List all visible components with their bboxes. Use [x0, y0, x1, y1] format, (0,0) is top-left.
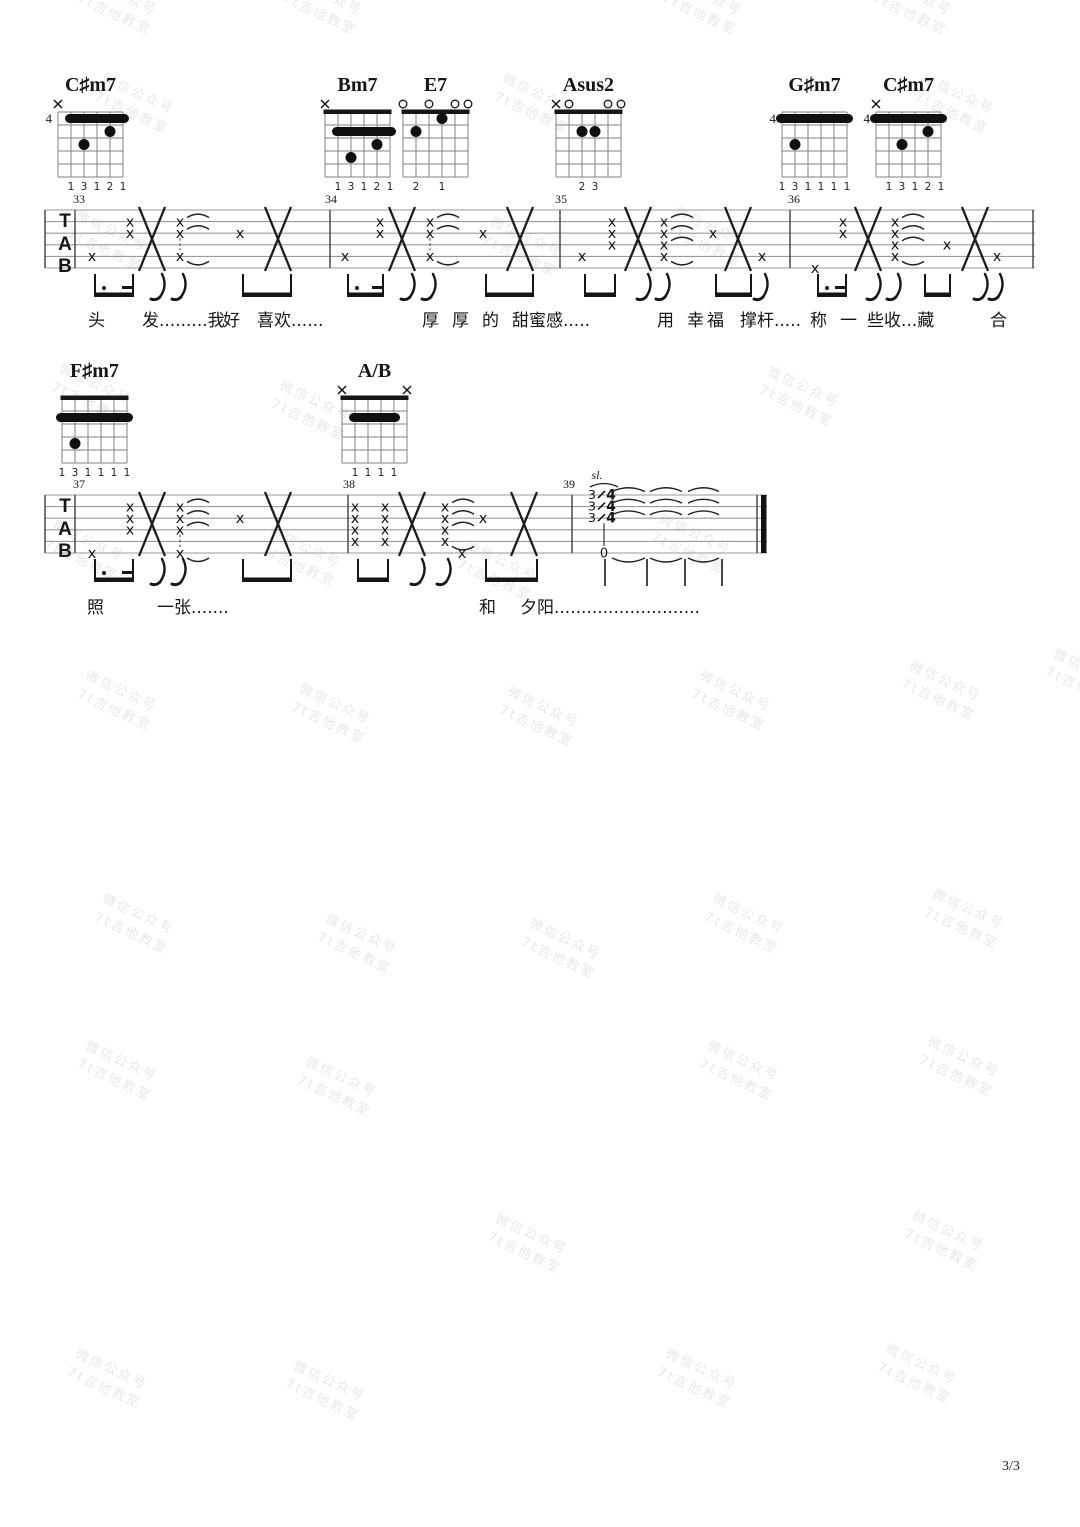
rhythm-flag-hook — [422, 297, 431, 300]
rhythm-beam — [584, 293, 616, 298]
chord-name: Bm7 — [338, 74, 378, 96]
chord-finger-number: 1 — [938, 181, 945, 193]
rhythm-flag-hook — [989, 297, 998, 300]
mute-x: x — [943, 238, 952, 254]
lyric-syllable: 喜欢...... — [257, 306, 323, 331]
mute-x: x — [441, 534, 450, 550]
measure-number: 38 — [343, 477, 355, 491]
chord-name: C♯m7 — [883, 74, 934, 96]
rhythm-flag-hook — [637, 297, 646, 300]
rhythm-beam — [485, 578, 538, 583]
chord-position-label: 4 — [46, 111, 53, 126]
chord-dot — [70, 438, 81, 449]
tie-arc — [650, 499, 682, 503]
tab-clef: B — [58, 256, 72, 277]
tab-clef: T — [59, 211, 71, 232]
open-string-icon — [399, 100, 407, 108]
chord-dot — [79, 139, 90, 150]
chord-finger-number: 1 — [387, 181, 394, 193]
mute-x: x — [176, 249, 185, 265]
chord-dot — [923, 126, 934, 137]
mute-x: x — [839, 226, 848, 242]
rhythm-flag-hook — [151, 297, 160, 300]
rhythm-beam — [94, 578, 134, 583]
open-note: 0 — [600, 547, 608, 562]
lyric-syllable: 厚 — [422, 306, 439, 331]
rhythm-dot — [355, 286, 359, 290]
measure-number: 39 — [563, 477, 575, 491]
chord-finger-number: 3 — [348, 181, 355, 193]
mute-x: x — [88, 249, 97, 265]
chord-finger-number: 1 — [805, 181, 812, 193]
mute-x: x — [341, 249, 350, 265]
chord-name: E7 — [424, 74, 447, 96]
tie-arc — [902, 226, 924, 230]
rhythm-flag-hook — [401, 297, 410, 300]
chord-finger-number: 2 — [374, 181, 381, 193]
chord-dot — [790, 139, 801, 150]
chord-finger-number: 3 — [899, 181, 906, 193]
rhythm-flag-hook — [151, 582, 160, 585]
rhythm-flag-hook — [656, 297, 665, 300]
chord-nut — [402, 110, 470, 115]
open-string-icon — [604, 100, 612, 108]
tie-arc — [650, 511, 682, 515]
tie-arc — [187, 499, 209, 503]
mute-x: x — [608, 238, 617, 254]
chord-barre — [870, 114, 947, 123]
chord-barre — [349, 413, 400, 422]
chord-finger-number: 1 — [94, 181, 101, 193]
chord-name: C♯m7 — [65, 74, 116, 96]
tie-arc — [612, 511, 645, 515]
tie-arc — [187, 558, 209, 562]
tie-arc — [187, 511, 209, 515]
rhythm-flag — [763, 274, 767, 297]
chord-finger-number: 2 — [413, 181, 420, 193]
chord-finger-number: 1 — [120, 181, 127, 193]
rhythm-flag — [420, 559, 424, 582]
rhythm-flag-hook — [437, 582, 446, 585]
tie-arc — [671, 237, 693, 241]
slide-from-fret: 3 — [588, 510, 596, 525]
rhythm-flag-hook — [172, 582, 181, 585]
lyric-syllable: 些收...藏 — [867, 306, 934, 331]
chord-nut — [61, 396, 129, 401]
final-barline-thick — [761, 495, 767, 553]
rhythm-flag-hook — [172, 297, 181, 300]
rhythm-beam — [242, 578, 292, 583]
mute-x: x — [126, 226, 135, 242]
rhythm-beam — [242, 293, 292, 298]
slide-label: sl. — [591, 468, 602, 482]
tie-arc — [688, 488, 719, 492]
lyric-syllable: 好 — [223, 306, 240, 331]
lyric-syllable: 甜蜜感..... — [512, 306, 590, 331]
rhythm-flag — [646, 274, 650, 297]
mute-x: x — [993, 249, 1002, 265]
chord-nut — [341, 396, 409, 401]
mute-x: x — [376, 226, 385, 242]
mute-x: x — [479, 511, 488, 527]
lyric-syllable: 称 — [810, 306, 827, 331]
rhythm-flag — [983, 274, 987, 297]
chord-finger-number: 2 — [925, 181, 932, 193]
chord-finger-number: 1 — [59, 467, 66, 479]
mute-x: x — [660, 249, 669, 265]
chord-finger-number: 1 — [124, 467, 131, 479]
mute-x: x — [126, 523, 135, 539]
tie-arc — [688, 499, 719, 503]
tie-arc — [187, 226, 209, 230]
lyric-syllable: 用 — [657, 306, 674, 331]
chord-position-label: 4 — [864, 111, 871, 126]
lyric-syllable: 和 — [479, 593, 496, 618]
chord-barre — [56, 413, 133, 422]
chord-dot — [897, 139, 908, 150]
tab-clef: A — [58, 234, 72, 255]
rhythm-dot — [825, 286, 829, 290]
tie-arc — [902, 261, 924, 265]
tie-arc — [650, 558, 682, 562]
rhythm-flag — [431, 274, 435, 297]
open-string-icon — [617, 100, 625, 108]
rhythm-beam — [357, 578, 389, 583]
chord-finger-number: 1 — [912, 181, 919, 193]
tie-arc — [612, 499, 645, 503]
tie-arc — [452, 499, 474, 503]
chord-finger-number: 1 — [361, 181, 368, 193]
lyric-syllable: 头 — [88, 306, 105, 331]
mute-x: x — [381, 534, 390, 550]
rhythm-dot — [102, 571, 106, 575]
rhythm-dot — [102, 286, 106, 290]
sheet-page: 微信公众号7t吉他教室微信公众号7t吉他教室微信公众号7t吉他教室微信公众号7t… — [0, 0, 1080, 1527]
rhythm-flag — [446, 559, 450, 582]
tie-arc — [671, 226, 693, 230]
tie-arc — [452, 511, 474, 515]
chord-position-label: 4 — [770, 111, 777, 126]
rhythm-sixteenth-beam — [122, 571, 133, 574]
chord-name: Asus2 — [563, 74, 614, 96]
tie-arc — [187, 522, 209, 526]
chord-dot — [577, 126, 588, 137]
open-string-icon — [425, 100, 433, 108]
chord-nut — [555, 110, 623, 115]
tie-arc — [437, 226, 459, 230]
chord-dot — [411, 126, 422, 137]
tie-arc — [612, 558, 645, 562]
tie-arc — [902, 237, 924, 241]
tab-clef: B — [58, 541, 72, 562]
rhythm-flag — [181, 559, 185, 582]
chord-finger-number: 1 — [391, 467, 398, 479]
measure-number: 35 — [555, 192, 567, 206]
music-notation: C♯m7412131Bm712131E712Asus232G♯m74111131… — [0, 0, 1080, 1527]
lyric-syllable: 发.........我 — [142, 306, 225, 331]
rhythm-flag — [181, 274, 185, 297]
rhythm-flag — [665, 274, 669, 297]
chord-dot — [346, 152, 357, 163]
chord-finger-number: 1 — [818, 181, 825, 193]
chord-dot — [437, 113, 448, 124]
rhythm-beam — [485, 293, 534, 298]
rhythm-flag — [160, 559, 164, 582]
chord-finger-number: 1 — [85, 467, 92, 479]
measure-number: 36 — [788, 192, 800, 206]
rhythm-flag-hook — [974, 297, 983, 300]
mute-x: x — [458, 546, 467, 562]
chord-nut — [324, 110, 392, 115]
tie-arc — [902, 214, 924, 218]
chord-finger-number: 1 — [365, 467, 372, 479]
rhythm-sixteenth-beam — [372, 286, 383, 289]
tie-arc — [187, 261, 209, 265]
rhythm-beam — [715, 293, 752, 298]
chord-dot — [105, 126, 116, 137]
lyric-syllable: 幸 — [687, 306, 704, 331]
rhythm-sixteenth-beam — [122, 286, 133, 289]
measure-number: 33 — [73, 192, 85, 206]
lyric-syllable: 合 — [990, 306, 1007, 331]
chord-finger-number: 1 — [439, 181, 446, 193]
lyric-syllable: 一 — [840, 306, 857, 331]
chord-finger-number: 2 — [107, 181, 114, 193]
chord-dot — [372, 139, 383, 150]
tie-arc — [671, 214, 693, 218]
tie-arc — [452, 522, 474, 526]
tie-arc — [437, 214, 459, 218]
mute-x: x — [236, 226, 245, 242]
rhythm-beam — [347, 293, 384, 298]
open-string-icon — [565, 100, 573, 108]
rhythm-flag-hook — [411, 582, 420, 585]
chord-finger-number: 1 — [378, 467, 385, 479]
chord-finger-number: 1 — [111, 467, 118, 479]
rhythm-flag-hook — [754, 297, 763, 300]
chord-finger-number: 1 — [98, 467, 105, 479]
open-string-icon — [451, 100, 459, 108]
tab-clef: A — [58, 519, 72, 540]
rhythm-flag — [896, 274, 900, 297]
tie-arc — [187, 214, 209, 218]
rhythm-flag — [160, 274, 164, 297]
rhythm-beam — [817, 293, 847, 298]
chord-finger-number: 3 — [592, 181, 599, 193]
rhythm-beam — [94, 293, 134, 298]
rhythm-flag — [410, 274, 414, 297]
lyric-syllable: 一张....... — [157, 593, 229, 618]
rhythm-beam — [924, 293, 951, 298]
tie-arc — [688, 558, 719, 562]
chord-finger-number: 2 — [579, 181, 586, 193]
lyric-syllable: 厚 — [452, 306, 469, 331]
tie-arc — [688, 511, 719, 515]
rhythm-flag-hook — [867, 297, 876, 300]
chord-name: A/B — [358, 360, 391, 382]
tie-arc — [437, 261, 459, 265]
chord-finger-number: 1 — [844, 181, 851, 193]
measure-number: 37 — [73, 477, 85, 491]
rhythm-flag-hook — [887, 297, 896, 300]
chord-name: G♯m7 — [788, 74, 840, 96]
tie-arc — [650, 488, 682, 492]
mute-x: x — [891, 249, 900, 265]
chord-name: F♯m7 — [70, 360, 119, 382]
chord-dot — [590, 126, 601, 137]
tab-clef: T — [59, 496, 71, 517]
rhythm-flag — [876, 274, 880, 297]
chord-finger-number: 1 — [831, 181, 838, 193]
rhythm-sixteenth-beam — [835, 286, 846, 289]
mute-x: x — [236, 511, 245, 527]
lyric-syllable: 撑杆..... — [740, 306, 801, 331]
mute-x: x — [351, 534, 360, 550]
lyric-syllable: 福 — [707, 306, 724, 331]
tie-arc — [612, 488, 645, 492]
lyric-syllable: 夕阳........................... — [520, 593, 700, 618]
measure-number: 34 — [325, 192, 337, 206]
mute-x: x — [709, 226, 718, 242]
rhythm-flag — [998, 274, 1002, 297]
chord-barre — [65, 114, 129, 123]
mute-x: x — [479, 226, 488, 242]
mute-x: x — [426, 249, 435, 265]
chord-barre — [776, 114, 853, 123]
open-string-icon — [464, 100, 472, 108]
chord-finger-number: 1 — [779, 181, 786, 193]
lyric-syllable: 照 — [87, 593, 104, 618]
tie-arc — [671, 261, 693, 265]
lyric-syllable: 的 — [482, 306, 499, 331]
mute-x: x — [578, 249, 587, 265]
page-number: 3/3 — [1002, 1459, 1020, 1475]
chord-finger-number: 1 — [886, 181, 893, 193]
chord-barre — [332, 127, 396, 136]
mute-x: x — [758, 249, 767, 265]
